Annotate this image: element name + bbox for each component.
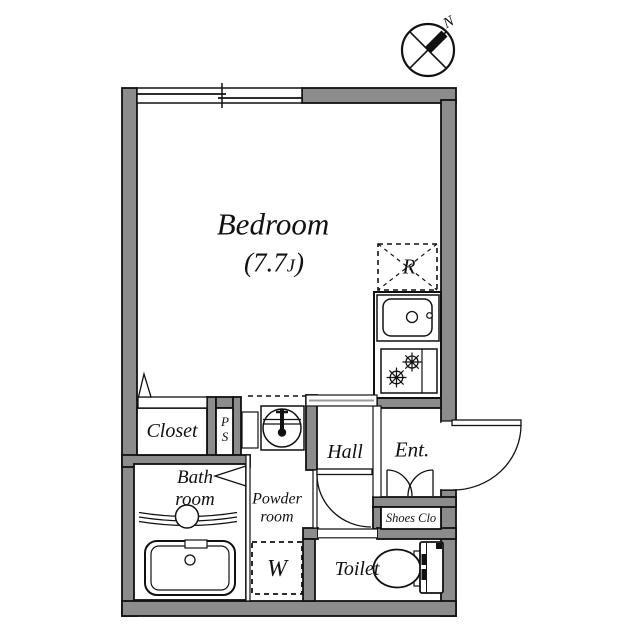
washer-label: W — [267, 557, 287, 581]
entrance-door — [452, 420, 521, 490]
refrigerator-label: R — [403, 257, 416, 278]
wall-toilet-left — [303, 539, 315, 601]
floorplan-drawing — [0, 0, 640, 640]
pipe-space-label: P S — [221, 415, 229, 445]
window — [137, 83, 302, 108]
shoes-closet-doors — [387, 470, 433, 496]
entrance-step — [373, 406, 381, 497]
wall-left-of-shoes — [373, 507, 381, 529]
wall-below-entrance — [373, 497, 456, 507]
bathtub-icon — [139, 505, 237, 595]
bedroom-area-label: (7.7J) — [244, 250, 304, 277]
powder-room-label: Powder room — [252, 491, 302, 528]
toilet-label: Toilet — [335, 559, 380, 579]
basin-cabinet — [242, 412, 258, 448]
floorplan-canvas: N Bedroom (7.7J) R Closet P S Bath room … — [0, 0, 640, 640]
wall-bath-powder-thin — [246, 455, 250, 601]
compass-icon — [402, 24, 454, 76]
bedroom-label: Bedroom — [217, 209, 330, 240]
wall-top — [302, 88, 456, 103]
wall-above-ps — [216, 397, 233, 408]
wall-right-upper — [441, 100, 456, 422]
toilet-door — [317, 469, 372, 527]
wall-ps-basin — [233, 397, 241, 455]
closet-door — [138, 397, 207, 408]
entrance-opening — [441, 421, 456, 490]
hall-label: Hall — [327, 442, 363, 462]
bathroom-label: Bath room — [175, 467, 214, 511]
wall-powder-vestibule-thin — [313, 470, 317, 528]
wall-bottom — [122, 601, 456, 616]
burner-icon — [387, 368, 407, 388]
toilet-doorway — [318, 529, 377, 539]
hall-threshold — [306, 395, 377, 406]
sink-icon — [383, 299, 432, 336]
wall-toilet-top-left — [303, 528, 318, 539]
closet-door-triangle — [139, 374, 152, 397]
toilet-icon — [374, 542, 444, 593]
entrance-label: Ent. — [395, 440, 429, 461]
washbasin-icon — [263, 409, 301, 447]
closet-label: Closet — [146, 421, 197, 441]
burner-icon — [403, 353, 422, 372]
shoes-closet-label: Shoes Clo — [386, 512, 436, 525]
